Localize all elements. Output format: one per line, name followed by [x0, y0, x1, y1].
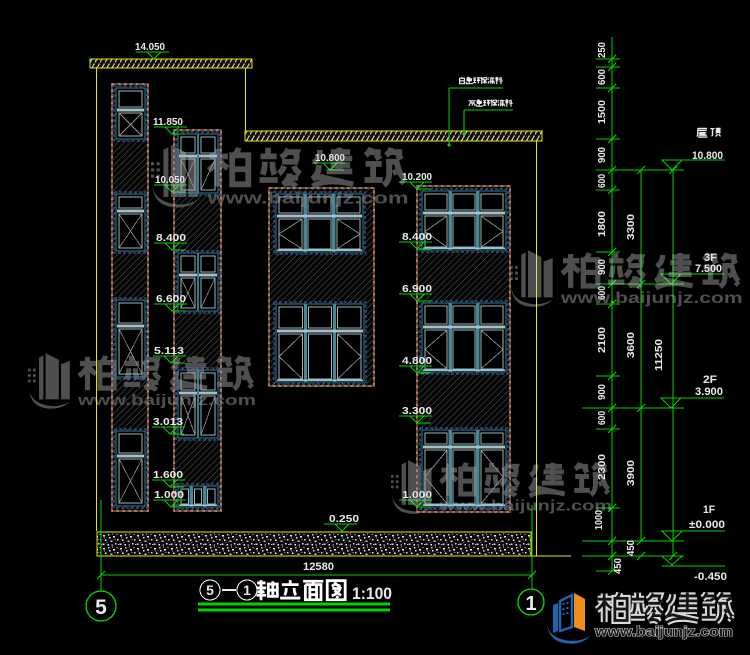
svg-text:600: 600 [596, 411, 608, 425]
svg-text:900: 900 [596, 147, 608, 163]
svg-text:6.900: 6.900 [402, 283, 432, 295]
svg-text:3900: 3900 [625, 460, 637, 486]
svg-text:www.baijunjz.com: www.baijunjz.com [594, 624, 733, 639]
svg-text:6.600: 6.600 [156, 293, 186, 305]
svg-text:1:100: 1:100 [352, 584, 392, 603]
svg-text:11250: 11250 [653, 339, 665, 371]
svg-text:3.013: 3.013 [153, 416, 183, 428]
svg-text:14.050: 14.050 [135, 41, 165, 53]
svg-text:-0.450: -0.450 [694, 571, 727, 583]
svg-text:1.600: 1.600 [153, 469, 183, 481]
svg-text:±0.000: ±0.000 [689, 519, 725, 531]
svg-text:1F: 1F [703, 504, 715, 516]
svg-text:3600: 3600 [625, 332, 637, 358]
svg-text:600: 600 [596, 174, 608, 188]
svg-text:900: 900 [596, 384, 608, 400]
svg-text:1: 1 [525, 593, 536, 615]
svg-text:600: 600 [596, 69, 608, 85]
svg-text:1: 1 [243, 582, 251, 598]
svg-text:10.200: 10.200 [402, 171, 432, 183]
svg-text:11.850: 11.850 [153, 116, 183, 128]
svg-text:1800: 1800 [596, 211, 608, 237]
svg-text:2F: 2F [703, 374, 717, 386]
svg-text:5.113: 5.113 [154, 345, 184, 357]
svg-text:1500: 1500 [596, 100, 608, 124]
svg-text:0.250: 0.250 [329, 513, 359, 525]
svg-text:12580: 12580 [303, 561, 334, 573]
svg-text:450: 450 [625, 540, 637, 556]
svg-text:4.800: 4.800 [402, 355, 432, 367]
svg-text:3.300: 3.300 [402, 405, 432, 417]
svg-text:3300: 3300 [625, 214, 637, 240]
svg-text:2100: 2100 [596, 327, 608, 353]
svg-text:8.400: 8.400 [156, 232, 186, 244]
svg-text:5: 5 [206, 582, 214, 598]
svg-text:250: 250 [596, 42, 608, 58]
svg-text:1.000: 1.000 [154, 489, 184, 501]
svg-text:8.400: 8.400 [402, 231, 432, 243]
svg-text:5: 5 [95, 596, 107, 619]
svg-text:3.900: 3.900 [695, 386, 723, 398]
svg-text:450: 450 [612, 558, 624, 574]
